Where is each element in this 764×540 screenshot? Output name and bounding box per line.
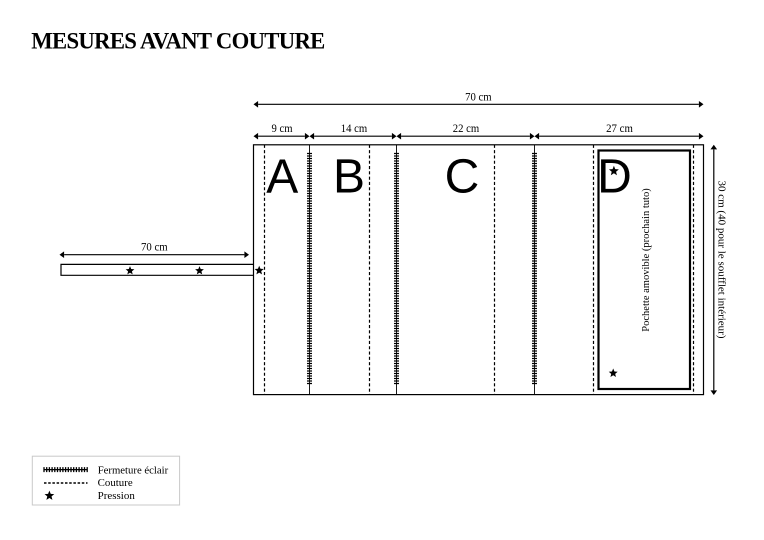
svg-text:Fermeture éclair: Fermeture éclair (98, 464, 169, 476)
svg-text:9 cm: 9 cm (272, 122, 293, 135)
svg-text:D: D (597, 150, 632, 203)
svg-text:Pression: Pression (98, 490, 136, 502)
svg-text:Pochette amovible (prochain tu: Pochette amovible (prochain tuto) (640, 188, 652, 332)
svg-text:A: A (266, 150, 298, 203)
svg-text:70 cm: 70 cm (465, 91, 492, 104)
svg-text:27 cm: 27 cm (606, 122, 633, 135)
svg-text:B: B (333, 150, 365, 203)
svg-text:22 cm: 22 cm (453, 122, 480, 135)
svg-text:C: C (445, 150, 480, 203)
svg-text:Couture: Couture (98, 477, 133, 489)
svg-text:14 cm: 14 cm (341, 122, 368, 135)
svg-text:70 cm: 70 cm (141, 241, 168, 254)
svg-text:MESURES AVANT COUTURE: MESURES AVANT COUTURE (31, 28, 325, 53)
svg-text:30 cm (40 pour le soufflet int: 30 cm (40 pour le soufflet intérieur) (716, 180, 728, 338)
